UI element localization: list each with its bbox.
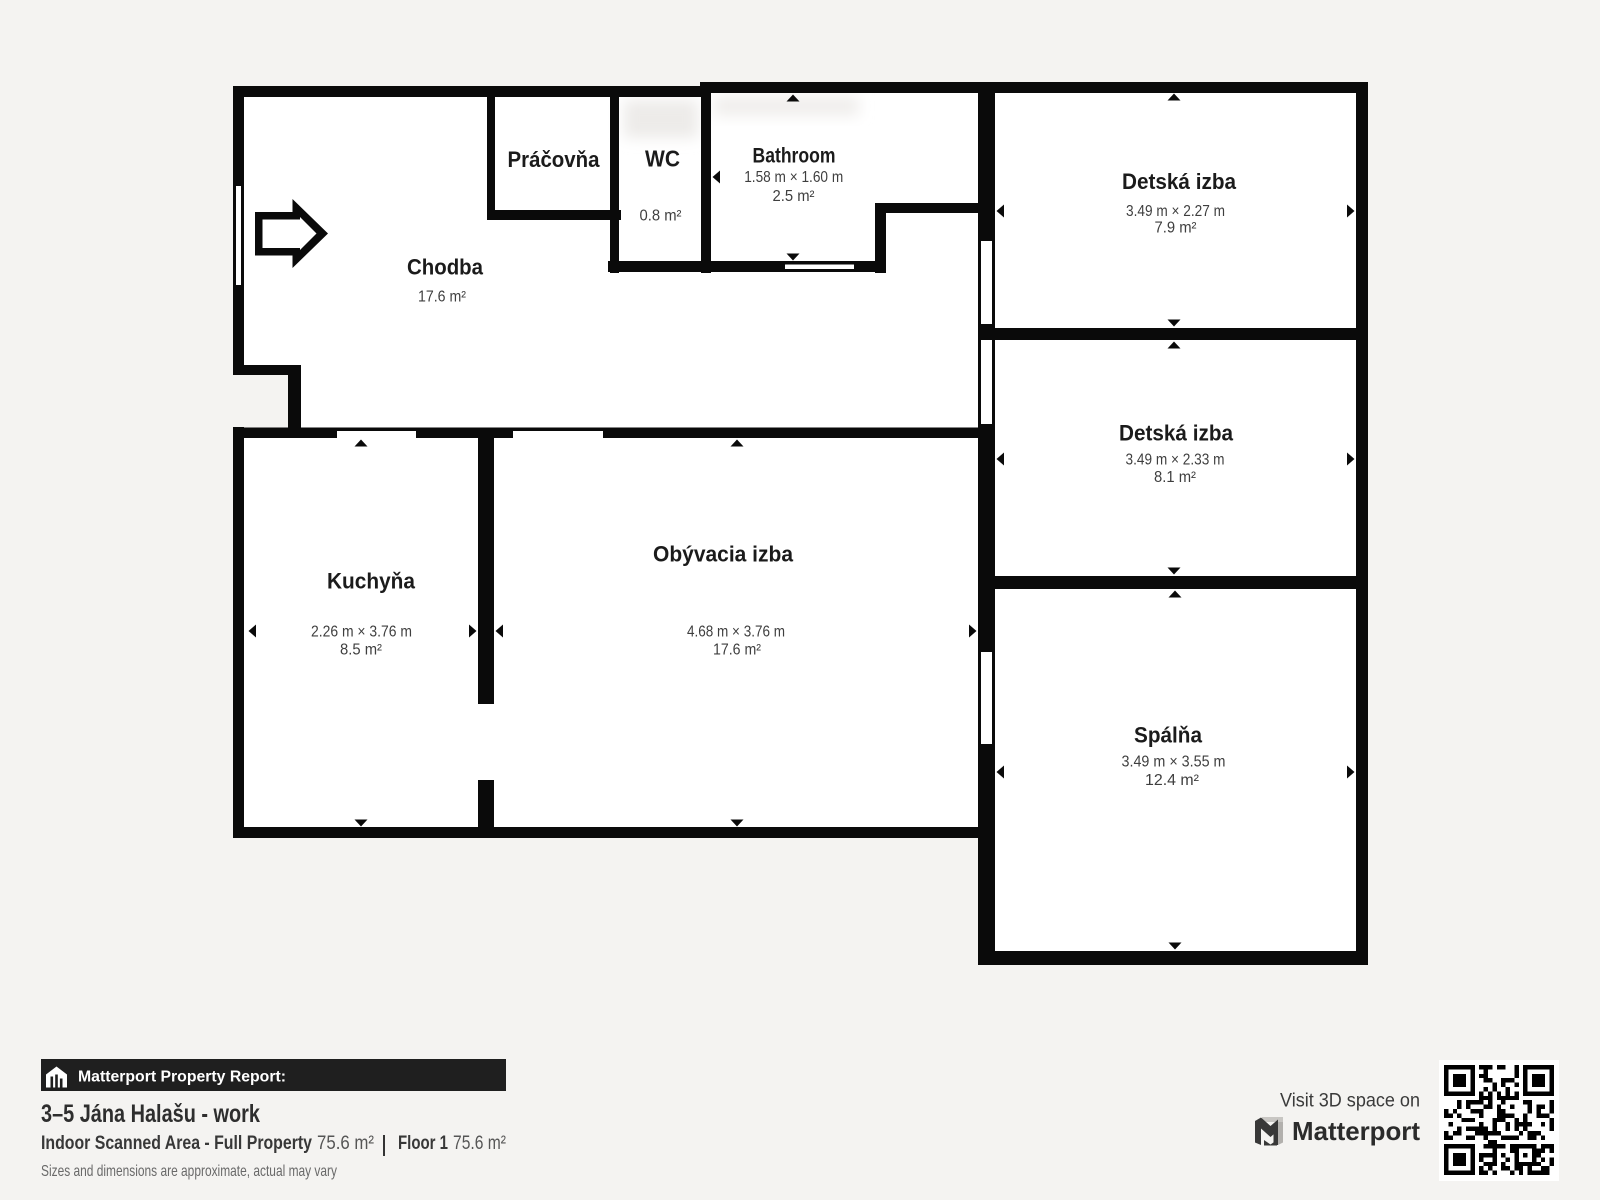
svg-text:Visit 3D space on: Visit 3D space on bbox=[1280, 1090, 1420, 1112]
svg-text:7.9 m²: 7.9 m² bbox=[1155, 220, 1197, 237]
svg-text:Detská izba: Detská izba bbox=[1122, 169, 1237, 194]
svg-text:WC: WC bbox=[645, 146, 680, 172]
svg-text:4.68 m × 3.76 m: 4.68 m × 3.76 m bbox=[687, 624, 785, 641]
svg-text:1.58 m × 1.60 m: 1.58 m × 1.60 m bbox=[744, 169, 843, 186]
svg-text:Sizes and dimensions are appro: Sizes and dimensions are approximate, ac… bbox=[41, 1163, 337, 1180]
svg-text:Chodba: Chodba bbox=[407, 255, 484, 280]
svg-text:Floor 1: Floor 1 bbox=[398, 1133, 448, 1154]
svg-text:2.5 m²: 2.5 m² bbox=[773, 188, 815, 205]
svg-text:3.49 m × 2.27 m: 3.49 m × 2.27 m bbox=[1126, 203, 1225, 220]
svg-text:Práčovňa: Práčovňa bbox=[508, 147, 601, 172]
svg-text:3.49 m × 2.33 m: 3.49 m × 2.33 m bbox=[1126, 452, 1225, 469]
svg-text:3–5 Jána Halašu - work: 3–5 Jána Halašu - work bbox=[41, 1100, 260, 1128]
svg-text:17.6 m²: 17.6 m² bbox=[418, 289, 466, 306]
svg-text:Obývacia izba: Obývacia izba bbox=[653, 542, 794, 567]
svg-text:8.5 m²: 8.5 m² bbox=[340, 642, 382, 659]
svg-text:2.26 m × 3.76 m: 2.26 m × 3.76 m bbox=[311, 624, 412, 641]
svg-text:75.6 m²: 75.6 m² bbox=[317, 1133, 374, 1154]
svg-text:0.8 m²: 0.8 m² bbox=[640, 207, 682, 224]
svg-text:3.49 m × 3.55 m: 3.49 m × 3.55 m bbox=[1122, 754, 1226, 771]
svg-text:Detská izba: Detská izba bbox=[1119, 421, 1234, 446]
svg-text:17.6 m²: 17.6 m² bbox=[713, 642, 761, 659]
svg-text:12.4 m²: 12.4 m² bbox=[1145, 772, 1199, 789]
svg-text:Matterport: Matterport bbox=[1292, 1116, 1420, 1146]
svg-text:Spálňa: Spálňa bbox=[1134, 723, 1203, 748]
svg-text:8.1 m²: 8.1 m² bbox=[1154, 469, 1196, 486]
svg-text:Matterport Property Report:: Matterport Property Report: bbox=[78, 1068, 286, 1085]
svg-text:Bathroom: Bathroom bbox=[753, 145, 836, 168]
svg-text:Indoor Scanned Area - Full Pro: Indoor Scanned Area - Full Property bbox=[41, 1133, 312, 1154]
svg-text:75.6 m²: 75.6 m² bbox=[453, 1133, 506, 1154]
svg-text:Kuchyňa: Kuchyňa bbox=[327, 569, 416, 594]
